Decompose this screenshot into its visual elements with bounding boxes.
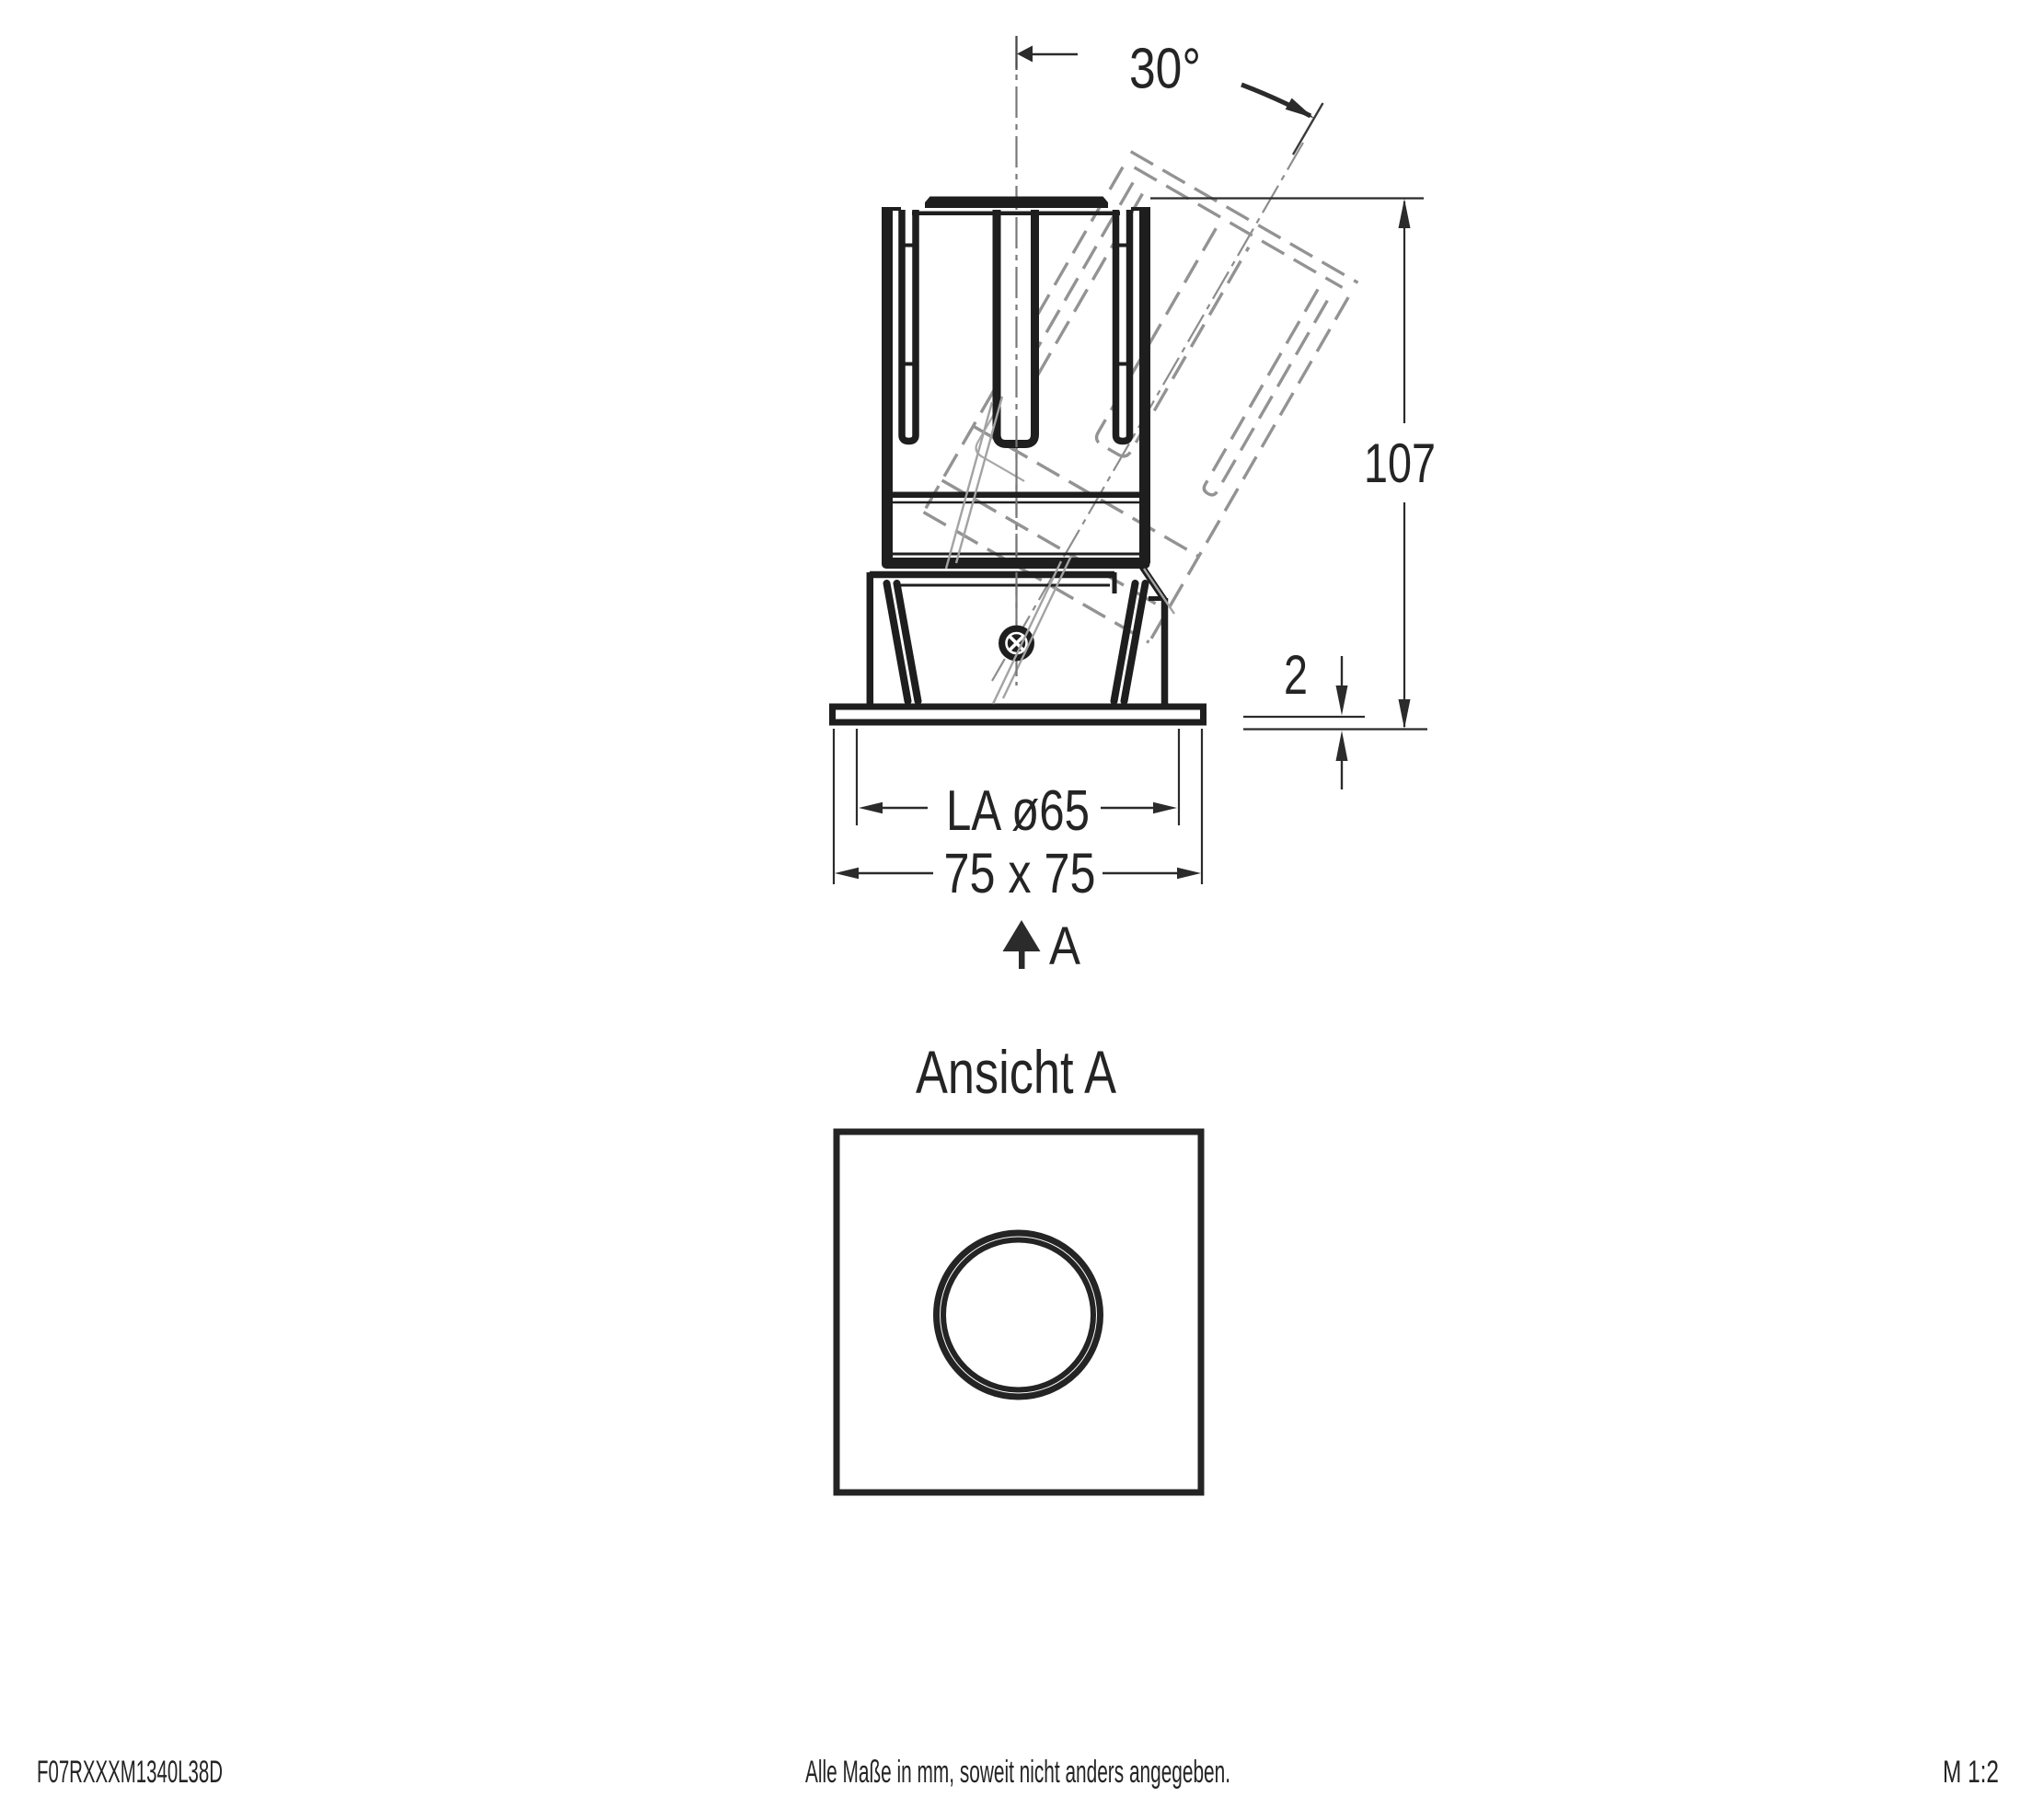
svg-text:Ansicht A: Ansicht A <box>916 1038 1116 1106</box>
svg-text:75 x 75: 75 x 75 <box>944 842 1096 904</box>
svg-text:LA ø65: LA ø65 <box>946 779 1090 843</box>
svg-text:F07RXXXM1340L38D: F07RXXXM1340L38D <box>37 1755 223 1790</box>
svg-text:Alle Maße in mm, soweit nicht: Alle Maße in mm, soweit nicht anders ang… <box>805 1755 1230 1790</box>
svg-text:A: A <box>1049 916 1080 976</box>
svg-text:30°: 30° <box>1129 38 1201 101</box>
svg-text:2: 2 <box>1284 644 1308 706</box>
svg-text:107: 107 <box>1364 432 1436 494</box>
svg-text:M 1:2: M 1:2 <box>1943 1755 1999 1790</box>
